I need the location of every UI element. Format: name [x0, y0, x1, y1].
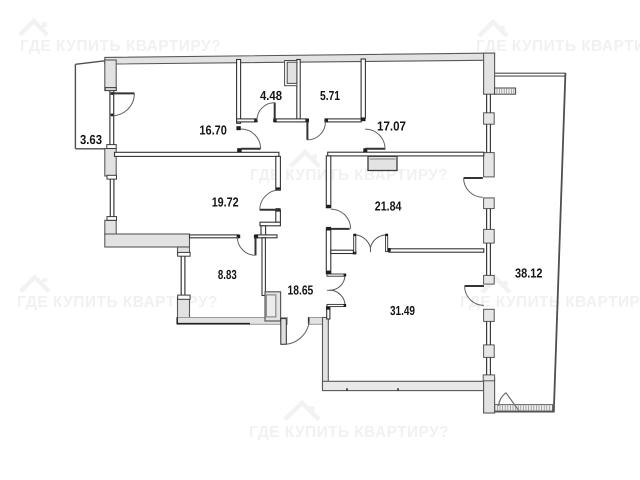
- svg-text:ГДЕ КУПИТЬ КВАРТИРУ?: ГДЕ КУПИТЬ КВАРТИРУ?: [460, 294, 640, 311]
- svg-text:ГДЕ КУПИТЬ КВАРТИРУ?: ГДЕ КУПИТЬ КВАРТИРУ?: [249, 424, 449, 441]
- svg-text:5.71: 5.71: [320, 88, 340, 103]
- svg-text:38.12: 38.12: [515, 265, 543, 280]
- svg-text:ГДЕ КУПИТЬ КВАРТИРУ?: ГДЕ КУПИТЬ КВАРТИРУ?: [476, 38, 640, 55]
- svg-text:17.07: 17.07: [377, 119, 406, 134]
- svg-text:21.84: 21.84: [375, 199, 402, 214]
- svg-text:31.49: 31.49: [390, 303, 415, 318]
- svg-text:8.83: 8.83: [218, 267, 237, 282]
- svg-text:16.70: 16.70: [199, 123, 227, 138]
- svg-text:4.48: 4.48: [260, 88, 282, 103]
- svg-text:3.63: 3.63: [80, 132, 102, 147]
- svg-text:ГДЕ КУПИТЬ КВАРТИРУ?: ГДЕ КУПИТЬ КВАРТИРУ?: [20, 38, 221, 55]
- svg-text:18.65: 18.65: [288, 283, 314, 298]
- svg-text:19.72: 19.72: [212, 195, 239, 210]
